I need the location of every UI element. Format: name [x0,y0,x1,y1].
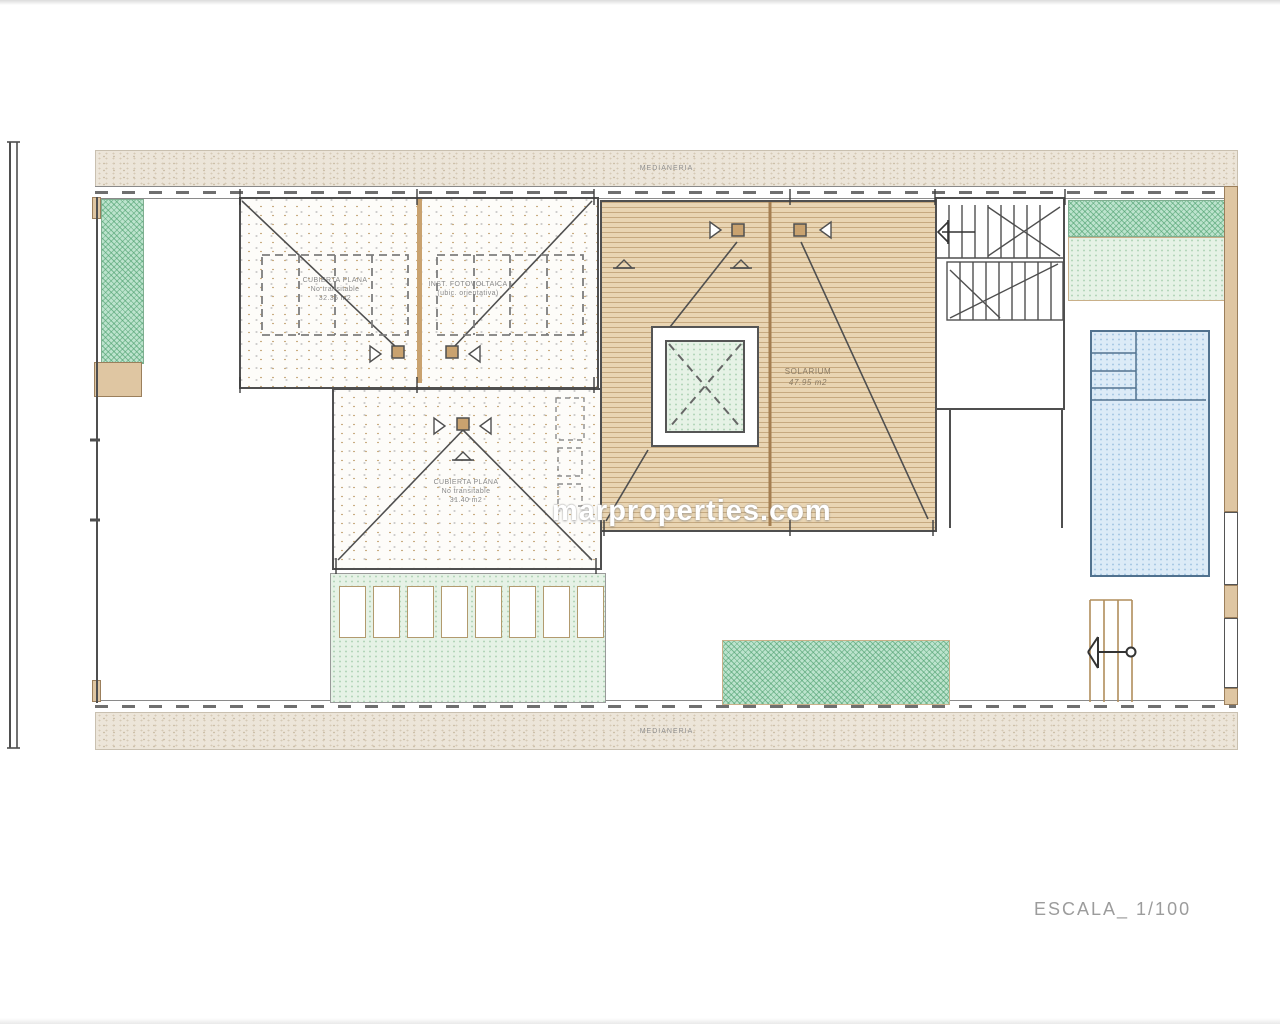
floor-plan-sheet: MEDIANERIA MEDIANERIA CUBIERTA PLANA No … [0,0,1280,1024]
scale-label: ESCALA_ 1/100 [1034,899,1191,920]
pool-steps [1090,330,1206,400]
skylight-x-icon [669,344,741,428]
stair-direction-arrow-icon [938,220,975,244]
watermark: marproperties.com [552,495,832,528]
stair-direction-arrow-icon [1088,637,1136,668]
vent-icon [452,260,752,460]
staircase-treads [935,205,1063,320]
slope-arrow-icon [370,222,831,434]
